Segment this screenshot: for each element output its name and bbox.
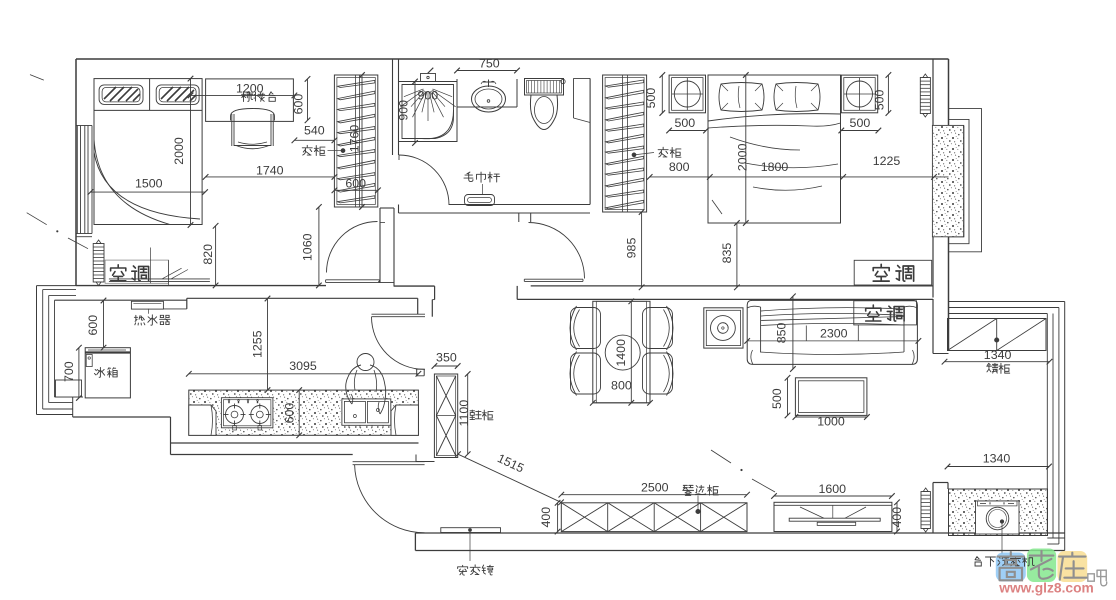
svg-text:1000: 1000 (817, 415, 845, 429)
svg-text:1740: 1740 (256, 163, 284, 177)
svg-text:850: 850 (775, 322, 789, 343)
svg-text:2500: 2500 (641, 480, 669, 494)
svg-text:1100: 1100 (457, 400, 471, 427)
svg-text:835: 835 (720, 243, 734, 264)
svg-text:1340: 1340 (983, 452, 1011, 466)
svg-text:900: 900 (397, 100, 411, 121)
svg-text:985: 985 (625, 238, 639, 259)
svg-text:500: 500 (850, 116, 871, 130)
svg-text:540: 540 (304, 124, 325, 138)
svg-text:820: 820 (201, 244, 215, 265)
svg-text:2300: 2300 (820, 327, 848, 341)
svg-text:500: 500 (674, 116, 695, 130)
svg-text:500: 500 (873, 89, 887, 110)
svg-text:800: 800 (669, 160, 690, 174)
svg-text:1500: 1500 (135, 177, 163, 191)
svg-text:350: 350 (436, 351, 457, 365)
svg-text:700: 700 (62, 361, 76, 382)
svg-text:600: 600 (345, 176, 366, 190)
svg-text:1400: 1400 (614, 339, 628, 367)
svg-text:500: 500 (644, 88, 658, 109)
svg-text:400: 400 (539, 507, 553, 528)
svg-text:800: 800 (611, 379, 632, 393)
svg-text:2000: 2000 (736, 143, 750, 171)
svg-text:1600: 1600 (819, 482, 847, 496)
svg-text:1340: 1340 (984, 348, 1012, 362)
svg-text:www.glz8.com: www.glz8.com (998, 581, 1094, 596)
svg-text:750: 750 (479, 56, 500, 70)
svg-text:1760: 1760 (347, 125, 361, 153)
svg-text:1800: 1800 (761, 160, 789, 174)
svg-text:600: 600 (291, 94, 305, 115)
svg-text:600: 600 (282, 403, 296, 424)
svg-text:900: 900 (417, 89, 438, 103)
svg-text:500: 500 (770, 388, 784, 409)
svg-text:600: 600 (86, 315, 100, 336)
svg-text:400: 400 (890, 507, 904, 528)
svg-text:3095: 3095 (289, 359, 317, 373)
svg-text:1060: 1060 (301, 233, 315, 261)
svg-text:1225: 1225 (873, 154, 901, 168)
svg-text:2000: 2000 (172, 137, 186, 165)
svg-text:1255: 1255 (251, 330, 265, 358)
